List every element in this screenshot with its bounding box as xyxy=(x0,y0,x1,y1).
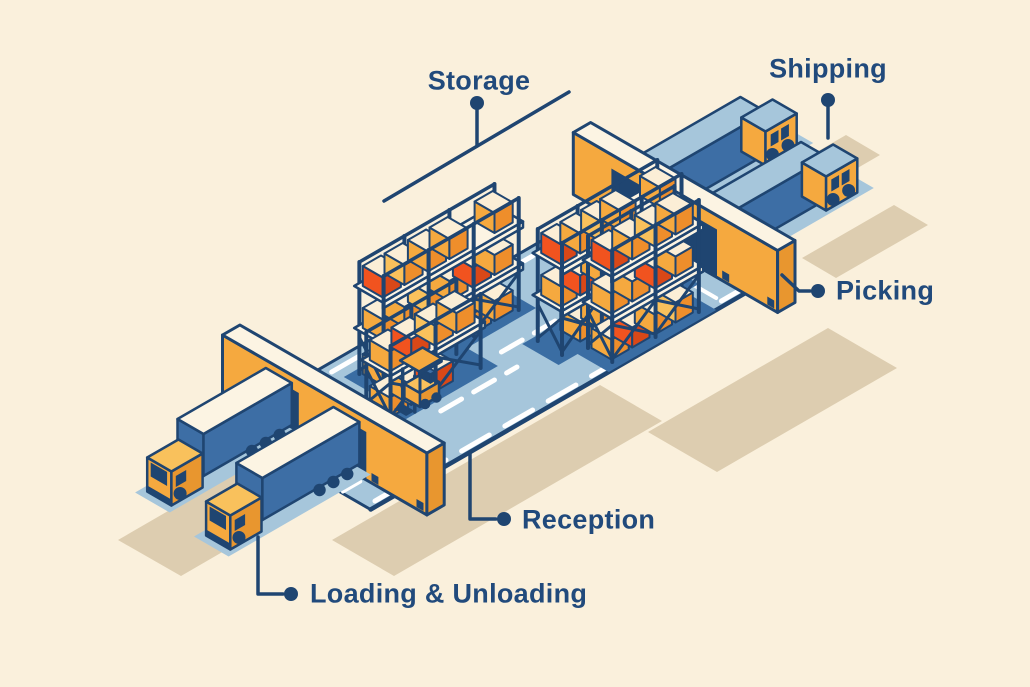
page: { "illustration": { "name": "Isometric w… xyxy=(0,0,1030,687)
loading-leader-dot xyxy=(284,587,298,601)
label-reception: Reception xyxy=(522,505,655,536)
picking-leader-dot xyxy=(811,284,825,298)
warehouse-diagram: Storage Shipping Picking Reception Loadi… xyxy=(0,0,1030,687)
storage-leader-dot xyxy=(470,96,484,110)
shipping-leader xyxy=(821,93,835,138)
storage-leader xyxy=(384,92,569,201)
reception-leader-dot xyxy=(497,512,511,526)
label-picking: Picking xyxy=(836,276,934,307)
shipping-leader-dot xyxy=(821,93,835,107)
label-storage: Storage xyxy=(428,66,531,97)
label-shipping: Shipping xyxy=(769,54,887,85)
loading-leader xyxy=(258,537,298,601)
label-loading-unloading: Loading & Unloading xyxy=(310,579,587,610)
